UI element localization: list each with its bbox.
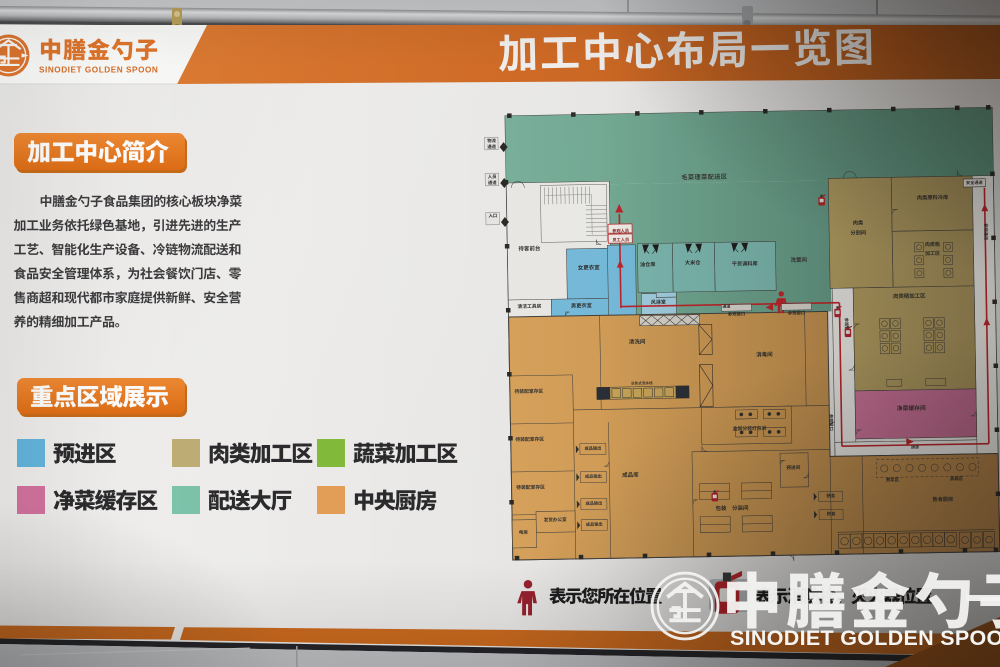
svg-text:SINODIET GOLDEN SPOON: SINODIET GOLDEN SPOON <box>730 626 1000 650</box>
